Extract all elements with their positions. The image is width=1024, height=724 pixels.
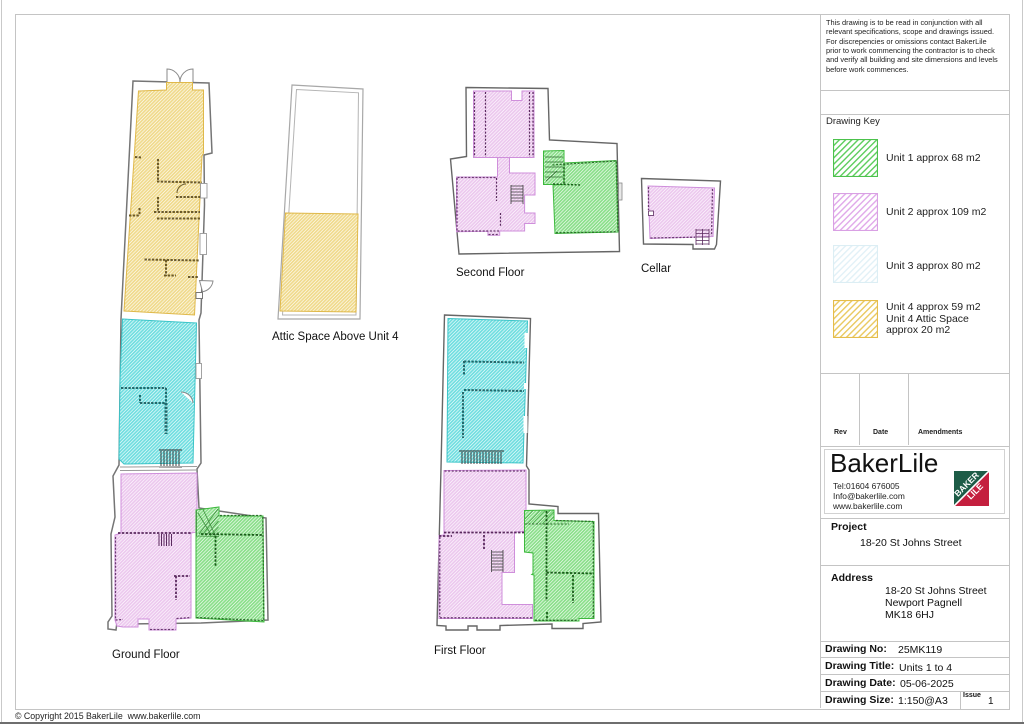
svg-text:Second Floor: Second Floor bbox=[456, 267, 525, 279]
svg-text:Attic Space Above Unit 4: Attic Space Above Unit 4 bbox=[272, 331, 399, 343]
svg-text:Ground Floor: Ground Floor bbox=[112, 649, 180, 661]
svg-text:First Floor: First Floor bbox=[434, 645, 486, 657]
svg-text:Cellar: Cellar bbox=[641, 263, 671, 275]
